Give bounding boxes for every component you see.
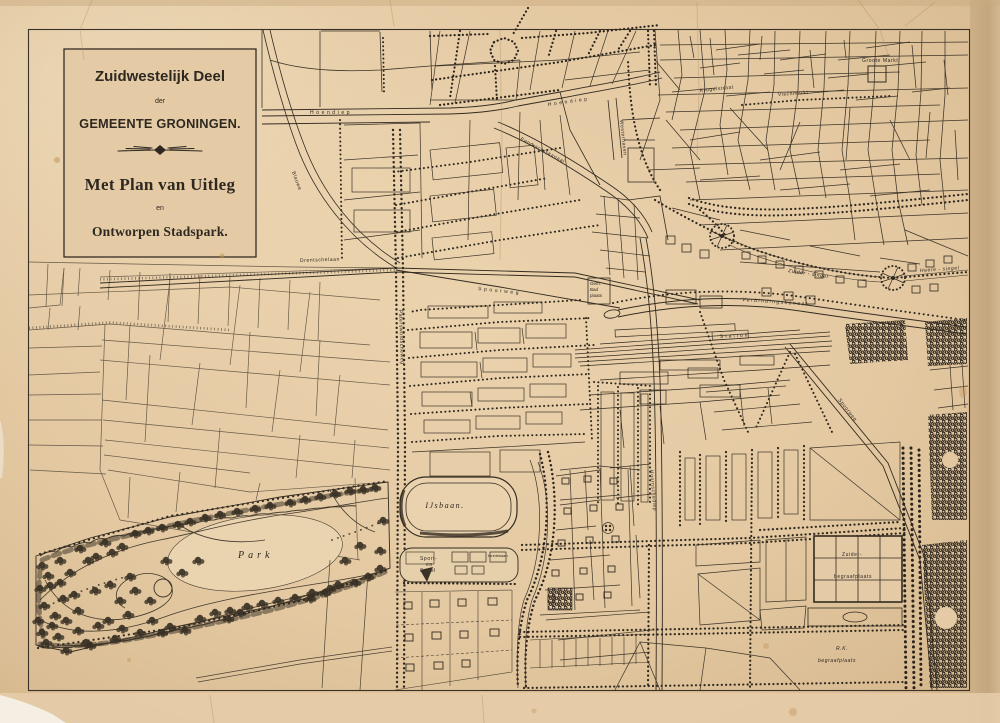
- svg-text:Ontworpen Stadspark.: Ontworpen Stadspark.: [92, 224, 228, 239]
- svg-text:Gem.: Gem.: [590, 281, 601, 286]
- svg-text:begraafplaats: begraafplaats: [834, 574, 872, 580]
- svg-text:Zuider-: Zuider-: [842, 552, 862, 558]
- svg-text:H o e n d i e p: H o e n d i e p: [310, 110, 350, 116]
- svg-text:plaats: plaats: [590, 293, 603, 298]
- svg-text:tennisbaan: tennisbaan: [488, 553, 508, 558]
- svg-text:IJsbaan.: IJsbaan.: [424, 501, 464, 510]
- svg-text:en: en: [156, 205, 164, 212]
- svg-text:Groote Markt: Groote Markt: [862, 58, 898, 64]
- svg-text:Zuidwestelijk Deel: Zuidwestelijk Deel: [95, 68, 225, 85]
- svg-text:der: der: [155, 98, 166, 105]
- svg-text:GEMEENTE GRONINGEN.: GEMEENTE GRONINGEN.: [79, 116, 241, 131]
- svg-text:begraafplaats: begraafplaats: [818, 658, 856, 664]
- svg-text:Park: Park: [237, 550, 273, 561]
- svg-text:R.K.: R.K.: [836, 646, 848, 652]
- svg-text:Met Plan van Uitleg: Met Plan van Uitleg: [85, 175, 236, 194]
- svg-text:Bad: Bad: [590, 287, 599, 292]
